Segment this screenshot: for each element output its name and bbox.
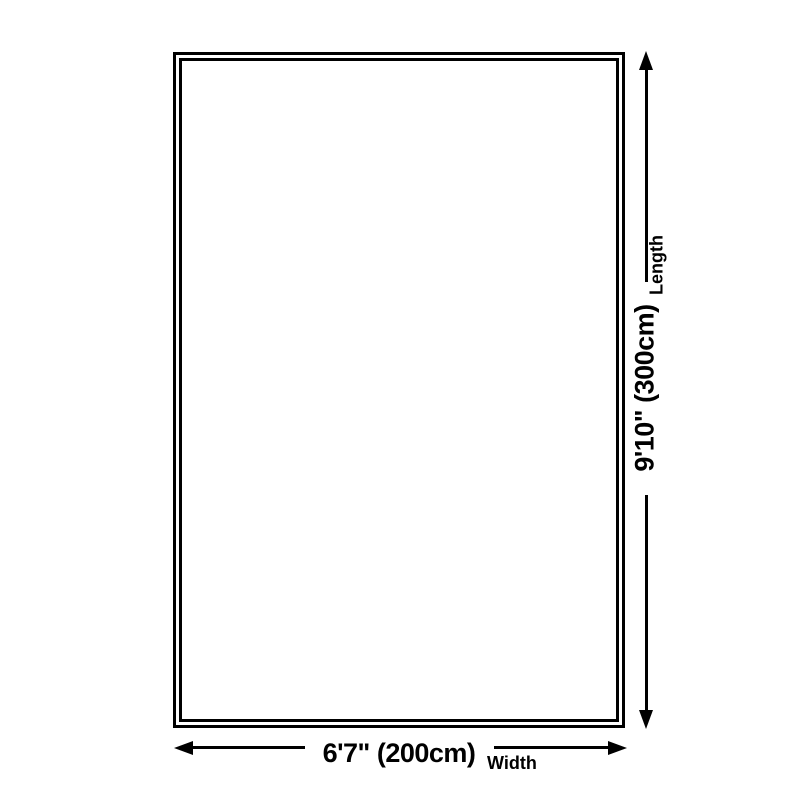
rug-outline bbox=[173, 52, 625, 728]
width-arrow-line-right bbox=[494, 746, 608, 749]
length-dimension-value: 9'10" (300cm) bbox=[630, 304, 661, 471]
rug-inner-border bbox=[179, 58, 619, 722]
width-dimension-value: 6'7" (200cm) bbox=[173, 738, 625, 769]
dimension-diagram: Length 9'10" (300cm) 6'7" (200cm) Width bbox=[0, 0, 800, 800]
width-label: Width bbox=[487, 753, 537, 774]
length-arrow-line-lower bbox=[645, 495, 648, 710]
length-label: Length bbox=[647, 235, 668, 295]
arrow-right-icon bbox=[608, 741, 627, 755]
arrow-down-icon bbox=[639, 710, 653, 729]
